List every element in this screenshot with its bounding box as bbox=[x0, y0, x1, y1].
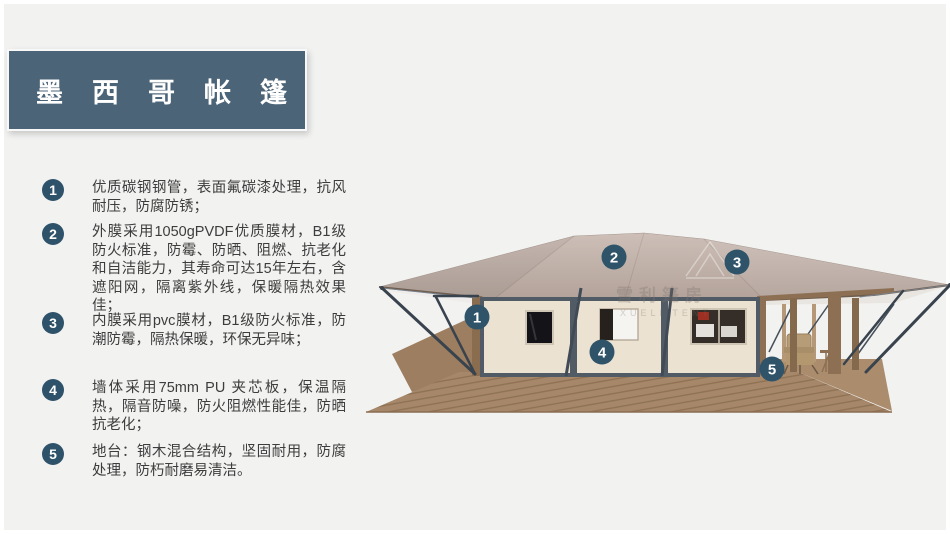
feature-number-badge: 2 bbox=[42, 223, 64, 245]
feature-text: 墙体采用75mm PU 夹芯板，保温隔热，隔音防噪，防火阻燃性能佳，防晒抗老化； bbox=[92, 379, 346, 435]
svg-text:1: 1 bbox=[473, 310, 481, 327]
feature-text: 外膜采用1050gPVDF优质膜材，B1级防火标准，防霉、防晒、阻燃、抗老化和自… bbox=[92, 223, 346, 316]
callout-4: 4 bbox=[590, 340, 615, 365]
feature-text: 地台：钢木混合结构，坚固耐用，防腐处理，防朽耐磨易清洁。 bbox=[92, 443, 346, 480]
page-title: 墨西哥帐篷 bbox=[9, 71, 316, 110]
tent-illustration: 雪利篷房 XUELI TENT 1 2 3 4 bbox=[354, 204, 950, 434]
callout-3: 3 bbox=[725, 250, 750, 275]
tent-walls bbox=[472, 288, 758, 376]
svg-text:3: 3 bbox=[733, 255, 741, 272]
feature-number-badge: 1 bbox=[42, 179, 64, 201]
feature-number-badge: 3 bbox=[42, 312, 64, 334]
svg-text:5: 5 bbox=[768, 362, 776, 379]
feature-text: 内膜采用pvc膜材，B1级防火标准，防潮防霉，隔热保暖，环保无异味； bbox=[92, 312, 346, 349]
tent-svg: 雪利篷房 XUELI TENT 1 2 3 4 bbox=[354, 204, 950, 434]
callout-2: 2 bbox=[602, 245, 627, 270]
feature-number-badge: 4 bbox=[42, 379, 64, 401]
feature-text: 优质碳钢钢管，表面氟碳漆处理，抗风耐压，防腐防锈； bbox=[92, 179, 346, 216]
callout-5: 5 bbox=[760, 357, 785, 382]
title-bar: 墨西哥帐篷 bbox=[7, 49, 307, 131]
svg-text:2: 2 bbox=[610, 250, 618, 267]
watermark-en: XUELI TENT bbox=[620, 308, 712, 318]
svg-text:4: 4 bbox=[598, 345, 607, 362]
watermark-cn: 雪利篷房 bbox=[616, 285, 708, 305]
feature-number-badge: 5 bbox=[42, 443, 64, 465]
slide-page: 墨西哥帐篷 1 优质碳钢钢管，表面氟碳漆处理，抗风耐压，防腐防锈； 2 外膜采用… bbox=[4, 4, 946, 530]
callout-1: 1 bbox=[465, 305, 490, 330]
